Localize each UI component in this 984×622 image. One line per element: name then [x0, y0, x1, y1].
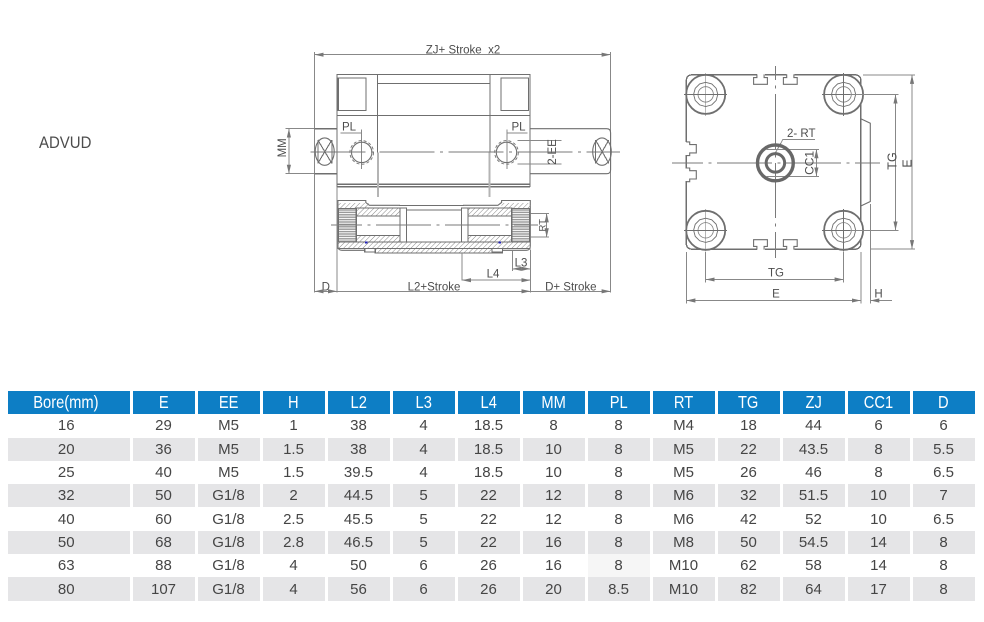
svg-text:L4: L4: [487, 269, 500, 281]
svg-text:E: E: [772, 289, 780, 301]
svg-text:TG: TG: [885, 152, 899, 169]
svg-text:H: H: [874, 289, 882, 301]
svg-text:E: E: [901, 159, 915, 167]
svg-text:MM: MM: [277, 138, 289, 157]
svg-text:L3: L3: [515, 257, 528, 269]
svg-text:PL: PL: [342, 122, 357, 134]
svg-text:PL: PL: [512, 122, 527, 134]
svg-text:2- RT: 2- RT: [787, 128, 816, 140]
svg-text:RT: RT: [538, 219, 549, 232]
svg-text:TG: TG: [768, 268, 784, 280]
svg-text:CC1: CC1: [803, 151, 817, 175]
